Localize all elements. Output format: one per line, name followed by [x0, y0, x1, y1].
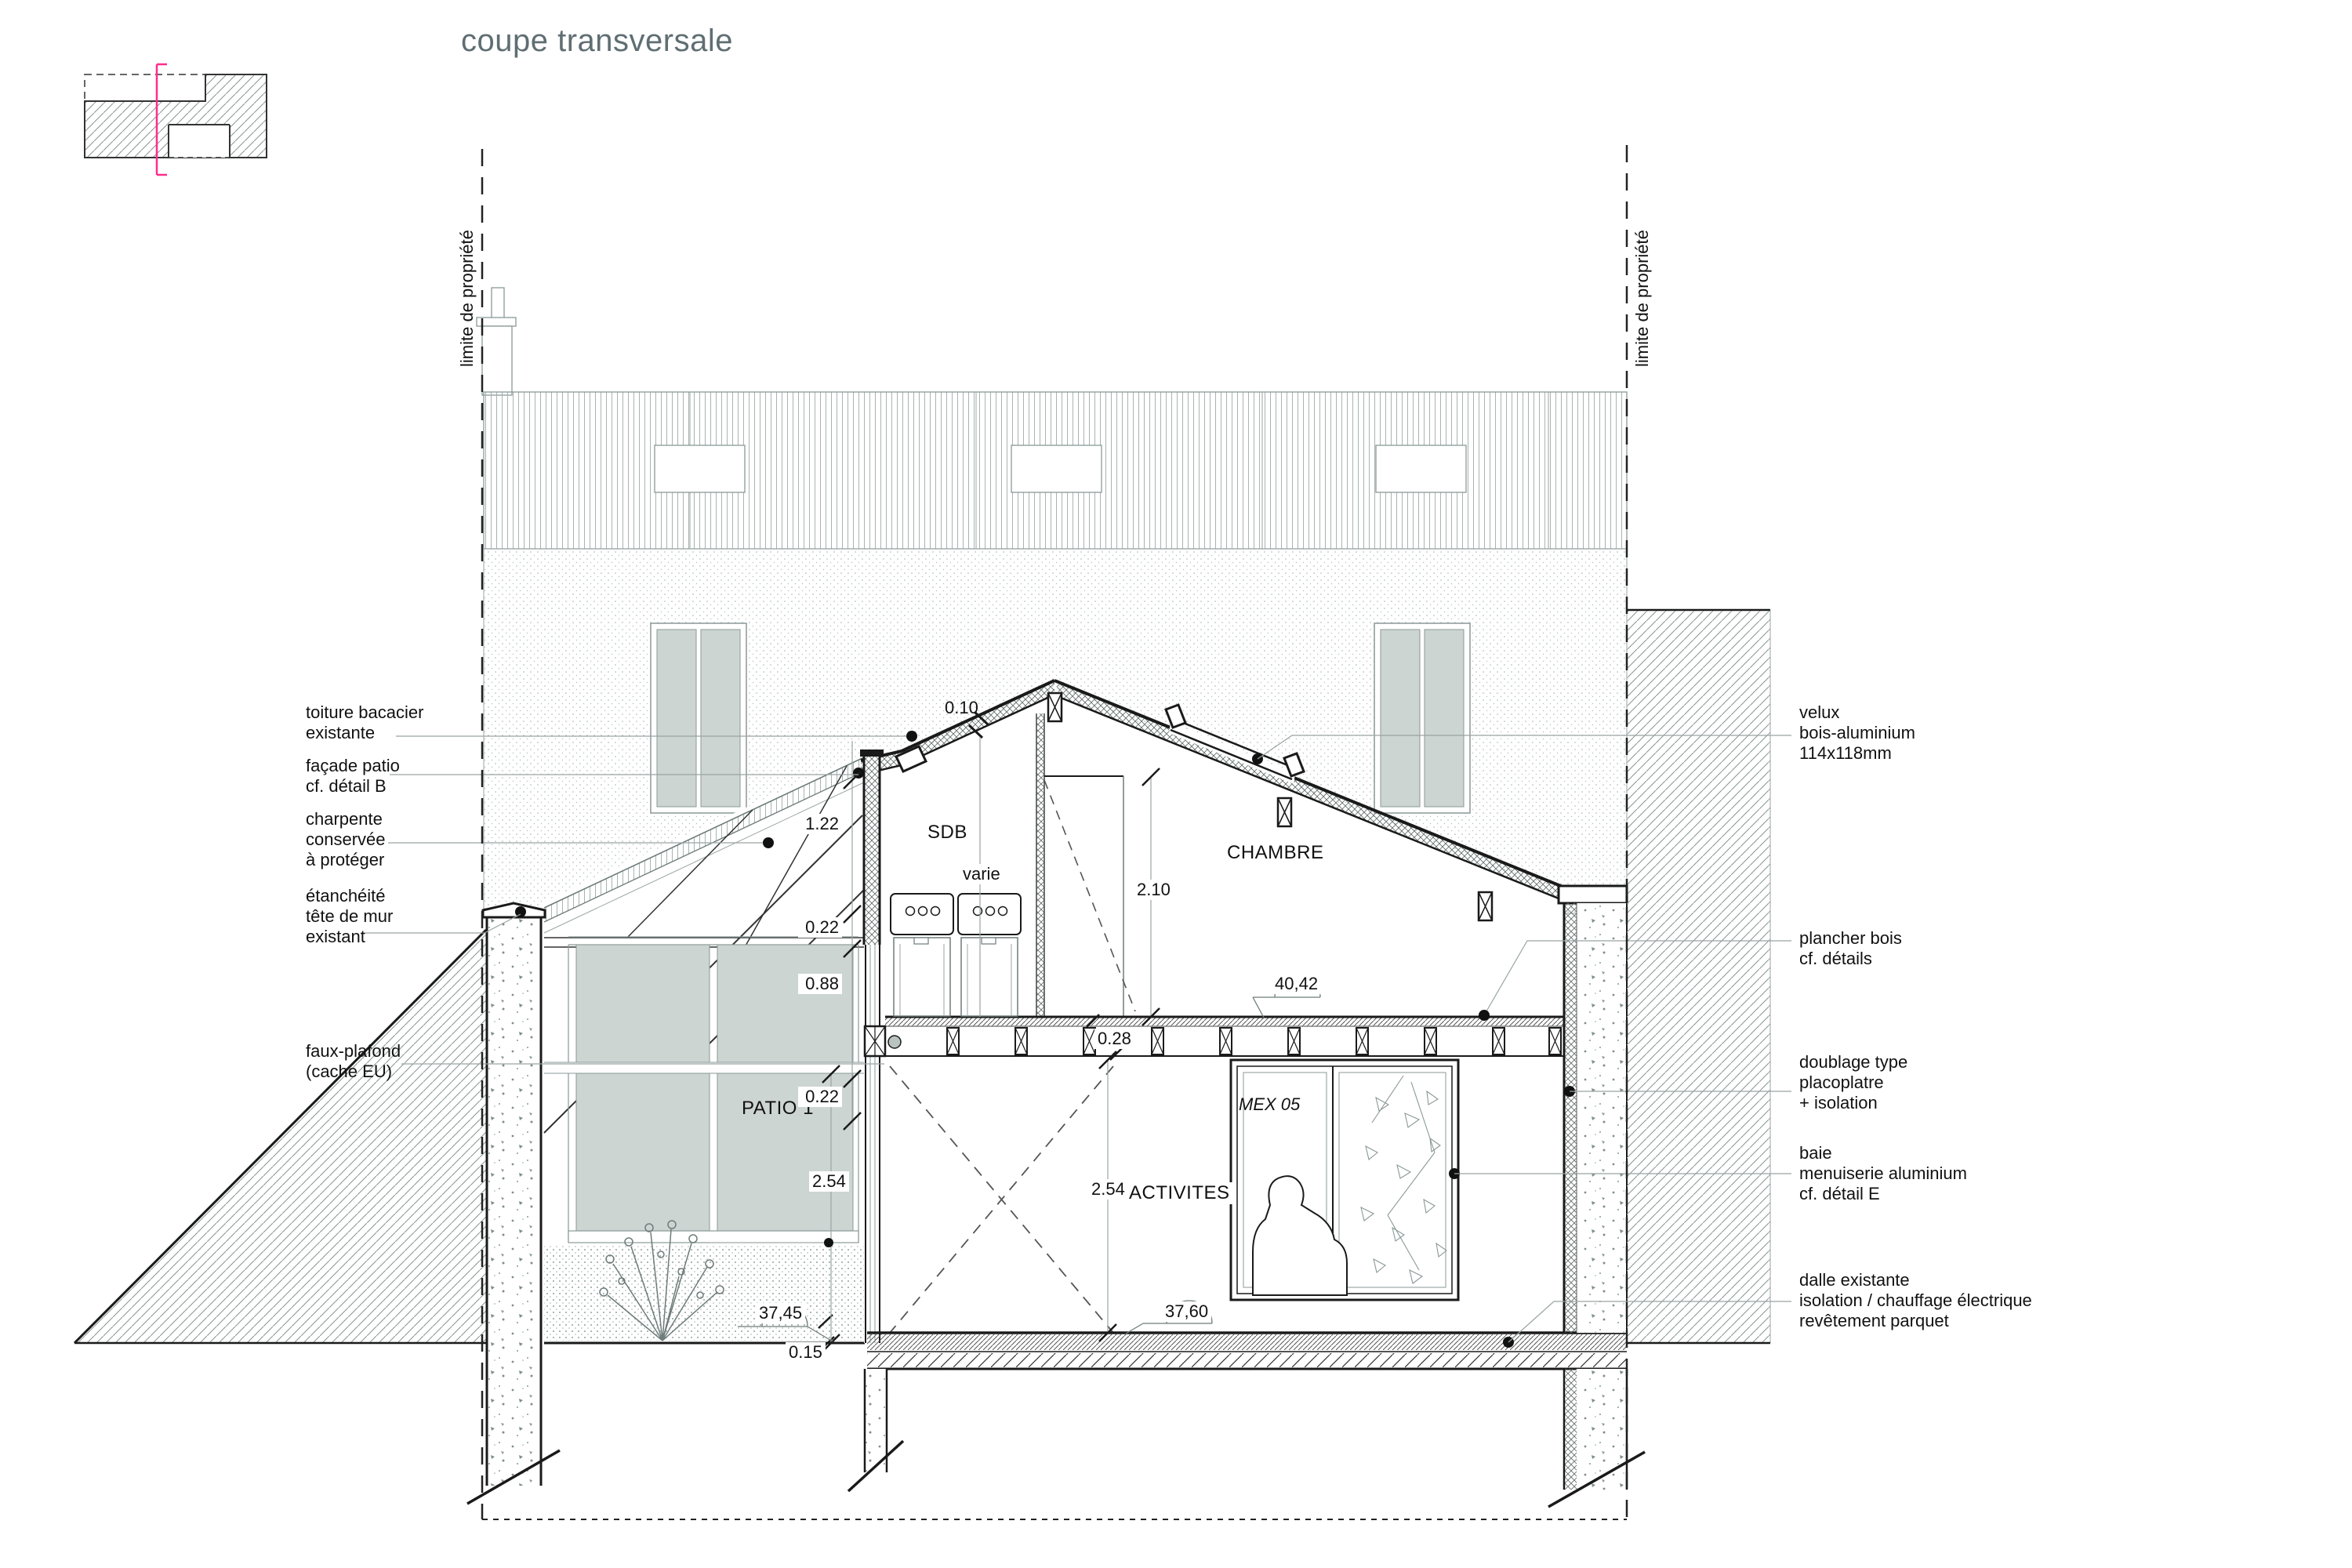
key-plan [85, 64, 267, 175]
roof-window [1376, 445, 1466, 492]
property-limit-right-label: limite de propriété [1632, 147, 1653, 367]
dim-015: 0.15 [786, 1342, 826, 1363]
facade-window-right [1374, 623, 1470, 813]
dim-122: 1.22 [798, 814, 842, 834]
dim-088: 0.88 [798, 974, 842, 994]
dim-210: 2.10 [1134, 880, 1174, 900]
room-label-activites: ACTIVITES [1126, 1182, 1233, 1204]
appliance-dryer [958, 894, 1021, 1016]
dim-varie: varie [960, 864, 1004, 884]
roof-window [655, 445, 745, 492]
property-limit-left-label: limite de propriété [457, 147, 477, 367]
annotation-charpente: charpente conservée à protéger [306, 809, 386, 870]
annotation-facade-patio: façade patio cf. détail B [306, 756, 400, 797]
annotation-etancheite: étanchéité tête de mur existant [306, 886, 393, 947]
dim-022b: 0.22 [798, 1087, 842, 1107]
page-title: coupe transversale [461, 24, 733, 59]
level-patio: 37,45 [756, 1303, 805, 1323]
dim-roof-thickness: 0.10 [945, 698, 978, 718]
roof-window [1011, 445, 1102, 492]
annotation-baie: baie menuiserie aluminium cf. détail E [1799, 1143, 1967, 1204]
neighbour-building [1627, 610, 1770, 1343]
annotation-dalle: dalle existante isolation / chauffage él… [1799, 1270, 2032, 1331]
window-tag-mex05: MEX 05 [1239, 1094, 1300, 1115]
annotation-velux: velux bois-aluminium 114x118mm [1799, 702, 1915, 764]
annotation-plancher: plancher bois cf. détails [1799, 928, 1902, 969]
dim-254-patio: 2.54 [809, 1171, 849, 1192]
room-label-chambre: CHAMBRE [1227, 842, 1324, 864]
purlin [1278, 798, 1291, 826]
architectural-section-sheet: coupe transversale limite de propriété l… [0, 0, 2352, 1568]
eu-pipe [888, 1036, 901, 1048]
annotation-faux-plafond: faux-plafond (cache EU) [306, 1041, 401, 1082]
left-terrain [74, 930, 486, 1343]
annotation-toiture: toiture bacacier existante [306, 702, 423, 743]
facade-window-left [651, 623, 746, 813]
dim-028: 0.28 [1094, 1029, 1134, 1049]
level-upper-floor: 40,42 [1272, 974, 1321, 994]
ridge-beam [1048, 693, 1062, 721]
room-label-sdb: SDB [927, 822, 967, 844]
dim-022a: 0.22 [798, 917, 842, 938]
level-ground-floor: 37,60 [1162, 1301, 1211, 1322]
middle-pier [848, 1369, 903, 1491]
dim-254-activites: 2.54 [1088, 1179, 1128, 1200]
appliance-washer [891, 894, 953, 1016]
purlin [1479, 892, 1492, 920]
patio-ground-texture [544, 1245, 864, 1341]
annotation-doublage: doublage type placoplatre + isolation [1799, 1052, 1907, 1113]
